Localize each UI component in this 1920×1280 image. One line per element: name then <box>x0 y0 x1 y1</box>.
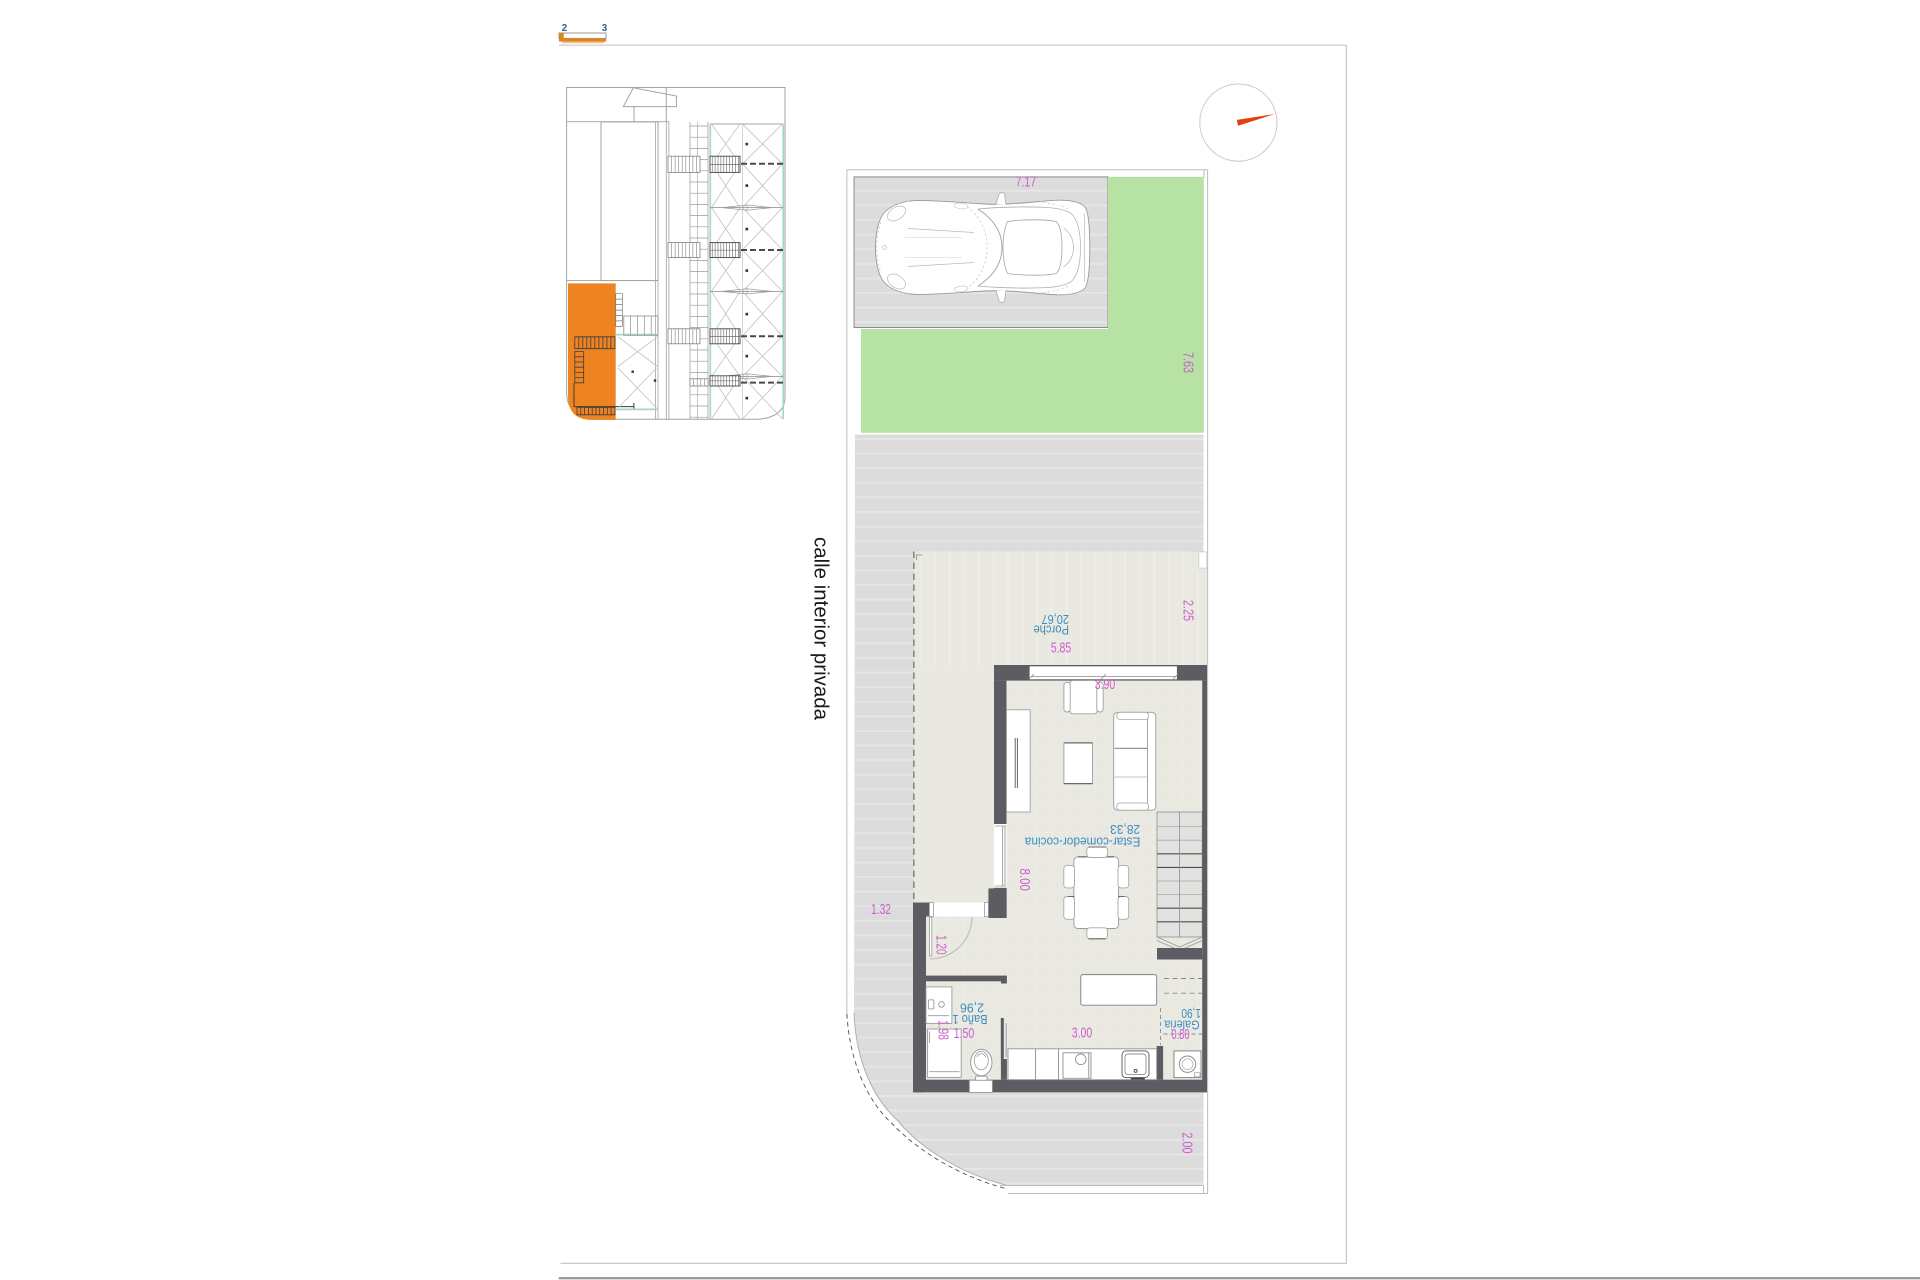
svg-text:3.90: 3.90 <box>1095 676 1116 693</box>
svg-text:0.80: 0.80 <box>1171 1026 1189 1043</box>
svg-text:1.32: 1.32 <box>871 901 891 918</box>
svg-text:3.00: 3.00 <box>1072 1025 1093 1042</box>
svg-text:2: 2 <box>562 23 568 34</box>
svg-text:7.17: 7.17 <box>1016 173 1037 190</box>
svg-text:calle interior privada: calle interior privada <box>810 537 833 721</box>
svg-text:7.63: 7.63 <box>1180 352 1197 373</box>
svg-text:1.98: 1.98 <box>935 1020 952 1040</box>
svg-text:1.50: 1.50 <box>954 1025 975 1042</box>
svg-text:3: 3 <box>602 23 608 34</box>
svg-text:2.25: 2.25 <box>1180 600 1197 621</box>
svg-text:1.20: 1.20 <box>933 935 950 955</box>
svg-text:2.00: 2.00 <box>1179 1132 1196 1153</box>
svg-text:5.85: 5.85 <box>1051 640 1072 657</box>
svg-text:20,67: 20,67 <box>1041 612 1069 627</box>
svg-text:28,33: 28,33 <box>1110 822 1140 837</box>
svg-text:8.00: 8.00 <box>1016 869 1033 891</box>
